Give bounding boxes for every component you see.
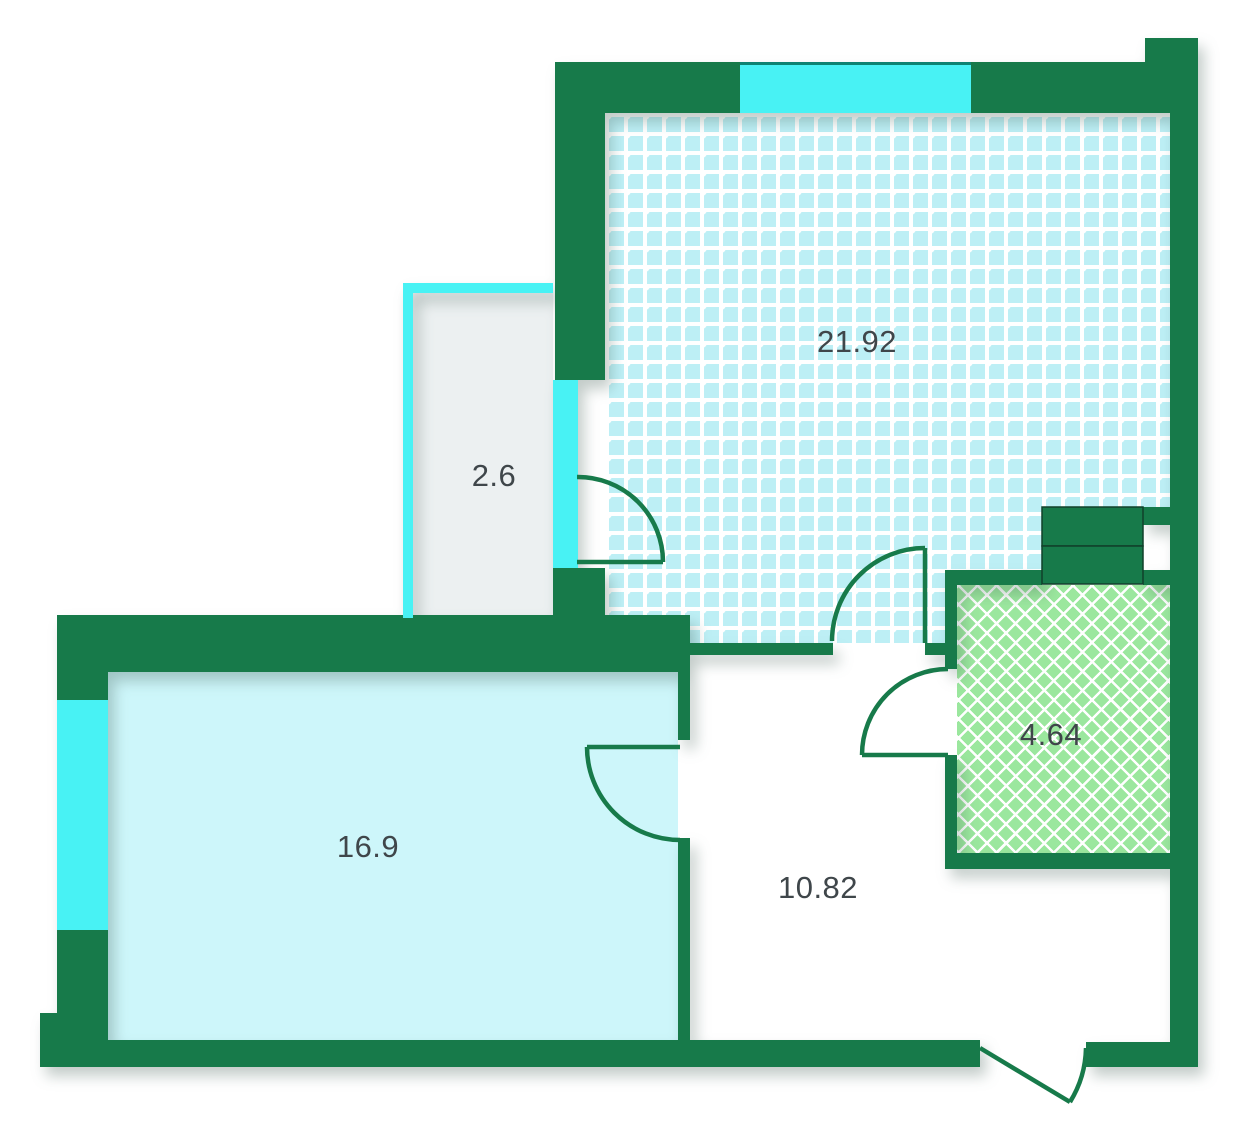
bathroom-area-label: 4.64 bbox=[1020, 717, 1082, 753]
duct-upper bbox=[1042, 507, 1143, 546]
doors-overlay bbox=[0, 0, 1254, 1127]
balcony-door-swing bbox=[577, 477, 663, 562]
entrance-door-leaf bbox=[980, 1048, 1070, 1102]
bedroom-door-swing bbox=[587, 747, 680, 840]
hallway-area-label: 10.82 bbox=[778, 870, 858, 906]
duct-lower bbox=[1042, 546, 1143, 584]
entrance-door-swing bbox=[1070, 1048, 1086, 1102]
floor-plan: 21.92 2.6 16.9 10.82 4.64 bbox=[0, 0, 1254, 1127]
living-door-swing bbox=[832, 548, 925, 641]
bathroom-door-swing bbox=[862, 669, 948, 755]
bedroom-area-label: 16.9 bbox=[337, 829, 399, 865]
living-room-area-label: 21.92 bbox=[817, 324, 897, 360]
balcony-area-label: 2.6 bbox=[472, 458, 517, 494]
